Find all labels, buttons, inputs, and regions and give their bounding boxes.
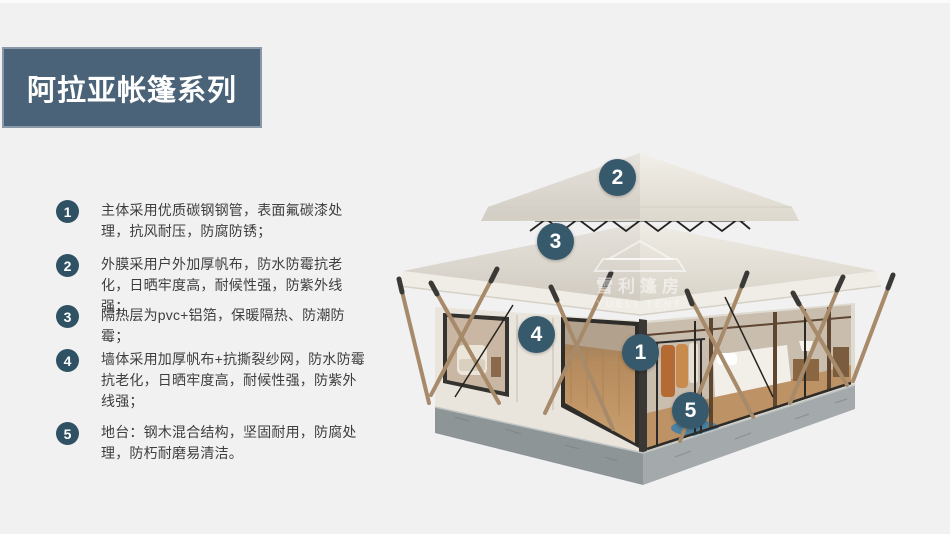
- callout-badge-5: 5: [672, 392, 709, 429]
- feature-number-badge-5: 5: [56, 422, 79, 445]
- feature-number-badge-1: 1: [56, 200, 79, 223]
- feature-number-badge-4: 4: [56, 349, 79, 372]
- feature-number-badge-2: 2: [56, 254, 79, 277]
- slide: 阿拉亚帐篷系列 1 主体采用优质碳钢钢管，表面氟碳漆处理，抗风耐压，防腐防锈； …: [0, 0, 950, 534]
- feature-text-1: 主体采用优质碳钢钢管，表面氟碳漆处理，抗风耐压，防腐防锈；: [101, 200, 369, 242]
- tent-illustration: 雪利篷房 YUELI TENT 2 3 4 1 5: [395, 145, 905, 515]
- feature-item-3: 3 隔热层为pvc+铝箔，保暖隔热、防潮防霉；: [56, 305, 369, 347]
- feature-text-4: 墙体采用加厚帆布+抗撕裂纱网，防水防霉抗老化，日晒牢度高，耐候性强，防紫外线强；: [101, 349, 369, 412]
- tent-photo: 雪利篷房 YUELI TENT: [395, 145, 905, 515]
- top-divider: [0, 0, 950, 3]
- feature-item-1: 1 主体采用优质碳钢钢管，表面氟碳漆处理，抗风耐压，防腐防锈；: [56, 200, 369, 242]
- feature-number-badge-3: 3: [56, 305, 79, 328]
- callout-badge-1: 1: [622, 334, 659, 371]
- tent-upper-roof: [481, 153, 799, 221]
- title-banner: 阿拉亚帐篷系列: [2, 47, 262, 128]
- page-title: 阿拉亚帐篷系列: [27, 67, 237, 109]
- callout-badge-2: 2: [599, 159, 636, 196]
- callout-badge-4: 4: [518, 316, 555, 353]
- watermark-en: YUELI TENT: [597, 299, 684, 309]
- feature-text-3: 隔热层为pvc+铝箔，保暖隔热、防潮防霉；: [101, 305, 369, 347]
- feature-item-4: 4 墙体采用加厚帆布+抗撕裂纱网，防水防霉抗老化，日晒牢度高，耐候性强，防紫外线…: [56, 349, 369, 412]
- hanging-clothes: [661, 345, 675, 397]
- feature-text-5: 地台：钢木混合结构，坚固耐用，防腐处理，防朽耐磨易清洁。: [101, 422, 369, 464]
- watermark-cn: 雪利篷房: [596, 276, 684, 296]
- callout-badge-3: 3: [537, 223, 574, 260]
- side-table: [491, 357, 501, 377]
- feature-item-5: 5 地台：钢木混合结构，坚固耐用，防腐处理，防朽耐磨易清洁。: [56, 422, 369, 464]
